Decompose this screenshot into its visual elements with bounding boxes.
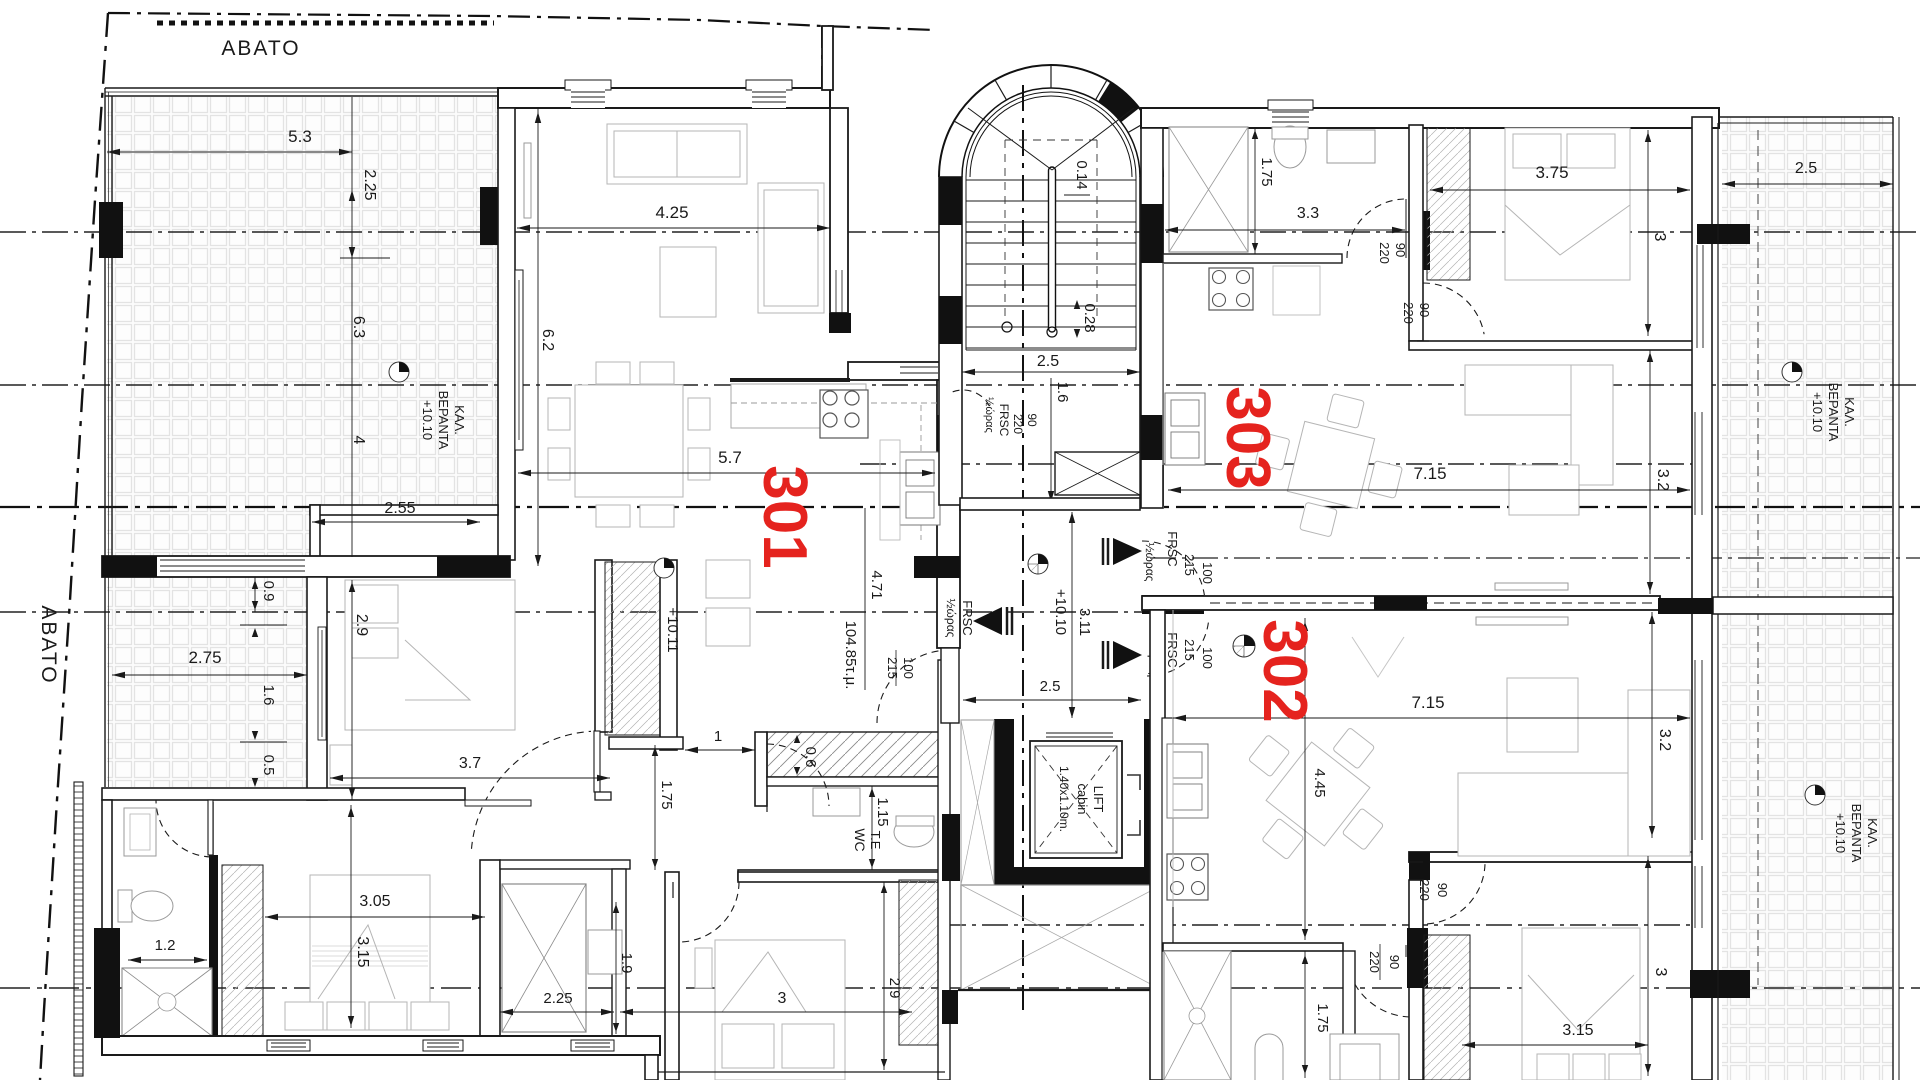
svg-text:303: 303 bbox=[1213, 386, 1282, 489]
svg-text:ABATO: ABATO bbox=[221, 37, 300, 60]
svg-text:½ώρας: ½ώρας bbox=[983, 397, 995, 433]
svg-text:0.28: 0.28 bbox=[1081, 303, 1098, 332]
svg-text:3: 3 bbox=[1651, 233, 1668, 242]
svg-text:90: 90 bbox=[1417, 303, 1432, 317]
svg-text:6.3: 6.3 bbox=[350, 316, 367, 338]
svg-text:0.9: 0.9 bbox=[260, 581, 277, 602]
svg-text:4: 4 bbox=[350, 436, 367, 445]
svg-text:+10.10: +10.10 bbox=[1052, 589, 1069, 635]
svg-text:3.2: 3.2 bbox=[1654, 469, 1671, 491]
svg-text:ΚΑΛ.: ΚΑΛ. bbox=[1842, 397, 1857, 427]
svg-text:+10.10: +10.10 bbox=[1810, 392, 1825, 432]
svg-text:90: 90 bbox=[1393, 243, 1408, 257]
svg-text:1: 1 bbox=[714, 728, 722, 745]
svg-text:1.40x1.10m.: 1.40x1.10m. bbox=[1057, 766, 1071, 832]
svg-text:1.75: 1.75 bbox=[1314, 1003, 1331, 1032]
svg-text:2.9: 2.9 bbox=[353, 614, 370, 636]
svg-text:220: 220 bbox=[1401, 302, 1416, 324]
svg-text:1.6: 1.6 bbox=[1054, 382, 1071, 403]
svg-text:2.9: 2.9 bbox=[886, 978, 903, 999]
svg-text:2.55: 2.55 bbox=[384, 500, 415, 517]
svg-text:cabin: cabin bbox=[1075, 783, 1090, 814]
svg-text:4.71: 4.71 bbox=[868, 570, 885, 599]
svg-text:301: 301 bbox=[750, 465, 819, 568]
svg-text:220: 220 bbox=[1417, 879, 1432, 901]
svg-text:ABATO: ABATO bbox=[37, 605, 60, 684]
svg-text:215: 215 bbox=[1182, 554, 1197, 576]
svg-text:ΒΕΡΑΝΤΑ: ΒΕΡΑΝΤΑ bbox=[1849, 804, 1864, 863]
svg-text:104.85τ.μ.: 104.85τ.μ. bbox=[842, 621, 859, 690]
svg-text:FRSC: FRSC bbox=[1165, 531, 1180, 566]
svg-text:215: 215 bbox=[1182, 639, 1197, 661]
svg-text:2.25: 2.25 bbox=[543, 990, 572, 1007]
svg-text:FRSC: FRSC bbox=[960, 600, 975, 635]
svg-text:0.5: 0.5 bbox=[260, 755, 277, 776]
svg-text:ΚΑΛ.: ΚΑΛ. bbox=[452, 405, 467, 435]
svg-text:+10.11: +10.11 bbox=[664, 607, 681, 652]
svg-text:3.05: 3.05 bbox=[359, 893, 390, 910]
svg-text:3: 3 bbox=[778, 990, 787, 1007]
svg-text:220: 220 bbox=[1377, 242, 1392, 264]
svg-text:3.7: 3.7 bbox=[459, 755, 481, 772]
svg-text:6.2: 6.2 bbox=[539, 329, 556, 351]
svg-text:2.5: 2.5 bbox=[1795, 160, 1817, 177]
svg-text:302: 302 bbox=[1250, 619, 1319, 722]
svg-text:2.75: 2.75 bbox=[188, 648, 221, 667]
svg-text:100: 100 bbox=[901, 657, 916, 679]
svg-text:LIFT: LIFT bbox=[1091, 786, 1106, 813]
svg-text:90: 90 bbox=[1435, 883, 1450, 897]
svg-text:1.15: 1.15 bbox=[874, 797, 891, 826]
svg-text:0.6: 0.6 bbox=[802, 747, 819, 768]
svg-text:3.3: 3.3 bbox=[1297, 205, 1319, 222]
svg-text:½ώρας: ½ώρας bbox=[1143, 543, 1157, 582]
svg-text:2.5: 2.5 bbox=[1040, 678, 1061, 695]
svg-text:3.2: 3.2 bbox=[1656, 729, 1673, 751]
svg-text:1.6: 1.6 bbox=[260, 685, 277, 706]
svg-text:7.15: 7.15 bbox=[1411, 693, 1444, 712]
svg-text:100: 100 bbox=[1200, 562, 1215, 584]
svg-text:5.7: 5.7 bbox=[718, 448, 742, 467]
svg-text:1.75: 1.75 bbox=[658, 780, 675, 809]
svg-text:4.45: 4.45 bbox=[1311, 768, 1328, 797]
svg-text:4.25: 4.25 bbox=[655, 203, 688, 222]
svg-text:½ώρας: ½ώρας bbox=[944, 599, 958, 638]
svg-text:0.14: 0.14 bbox=[1073, 160, 1090, 189]
svg-text:3.11: 3.11 bbox=[1076, 608, 1093, 636]
svg-text:215: 215 bbox=[885, 657, 900, 679]
svg-text:+10.10: +10.10 bbox=[1833, 813, 1848, 853]
svg-text:5.3: 5.3 bbox=[288, 127, 312, 146]
svg-text:90: 90 bbox=[1025, 413, 1039, 427]
svg-text:3.75: 3.75 bbox=[1535, 163, 1568, 182]
svg-text:2.5: 2.5 bbox=[1037, 353, 1059, 370]
svg-text:T.E: T.E bbox=[868, 831, 883, 850]
svg-text:7.15: 7.15 bbox=[1413, 464, 1446, 483]
svg-text:WC: WC bbox=[852, 828, 868, 851]
svg-text:1.2: 1.2 bbox=[155, 937, 176, 954]
svg-text:ΚΑΛ.: ΚΑΛ. bbox=[1865, 818, 1880, 848]
svg-text:2.25: 2.25 bbox=[361, 169, 378, 200]
svg-text:100: 100 bbox=[1200, 647, 1215, 669]
svg-text:3: 3 bbox=[1652, 968, 1669, 977]
svg-text:+10.10: +10.10 bbox=[420, 400, 435, 440]
svg-text:ΒΕΡΑΝΤΑ: ΒΕΡΑΝΤΑ bbox=[436, 391, 451, 450]
svg-text:FRSC: FRSC bbox=[1165, 632, 1180, 667]
svg-text:3.15: 3.15 bbox=[354, 936, 371, 967]
svg-text:1.9: 1.9 bbox=[618, 953, 635, 974]
svg-text:1.75: 1.75 bbox=[1258, 157, 1275, 186]
svg-text:90: 90 bbox=[1387, 955, 1402, 969]
svg-text:3.15: 3.15 bbox=[1562, 1022, 1593, 1039]
svg-text:220: 220 bbox=[1011, 414, 1025, 434]
svg-text:ΒΕΡΑΝΤΑ: ΒΕΡΑΝΤΑ bbox=[1826, 383, 1841, 442]
svg-text:FRSC: FRSC bbox=[997, 404, 1011, 437]
